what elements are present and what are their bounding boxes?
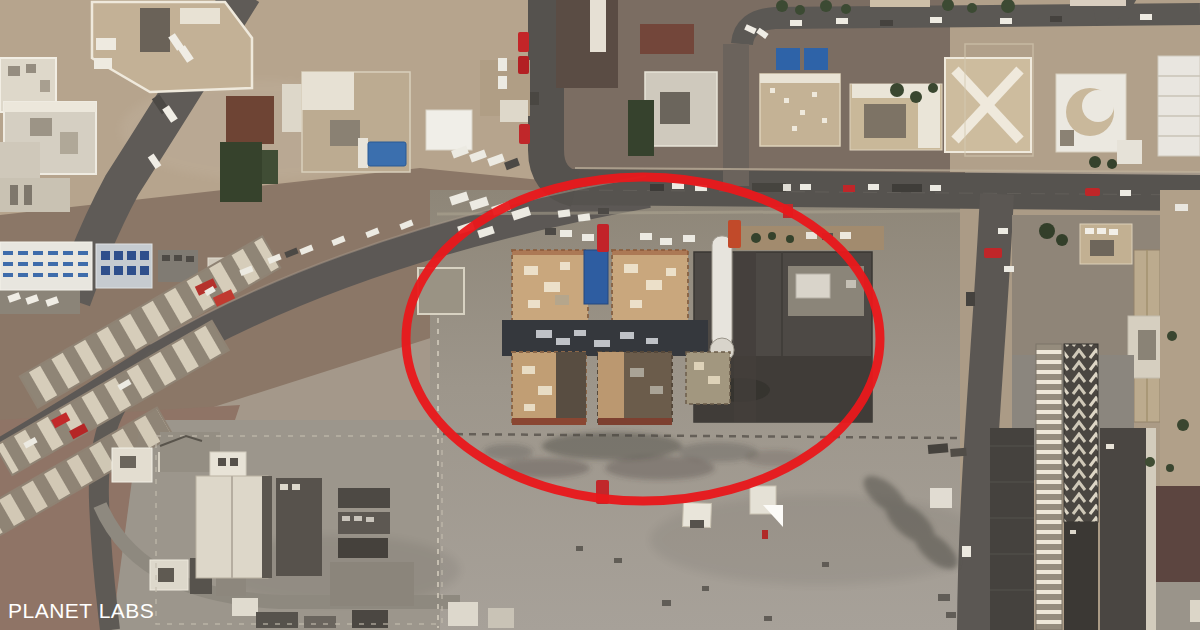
rooftop-pool (776, 48, 800, 70)
district-right (990, 190, 1200, 630)
white-tower (712, 236, 732, 348)
rooftop-pool (804, 48, 828, 70)
satellite-screenshot: PLANET LABS (0, 0, 1200, 630)
tan-building-nw (512, 250, 588, 322)
swimming-pool (368, 142, 406, 166)
road-main-horizontal (570, 187, 1200, 193)
blue-tarp (584, 250, 608, 304)
tan-building-ne (612, 250, 688, 322)
hedge (220, 142, 262, 202)
tan-building-sw (512, 352, 586, 425)
red-truck (728, 220, 741, 248)
red-truck (597, 224, 609, 252)
annex-building (686, 352, 730, 404)
burned-strip (502, 320, 708, 356)
satellite-image: PLANET LABS (0, 0, 1200, 630)
tan-building-se (598, 352, 672, 425)
white-canopy (426, 110, 472, 150)
watermark: PLANET LABS (8, 599, 154, 622)
